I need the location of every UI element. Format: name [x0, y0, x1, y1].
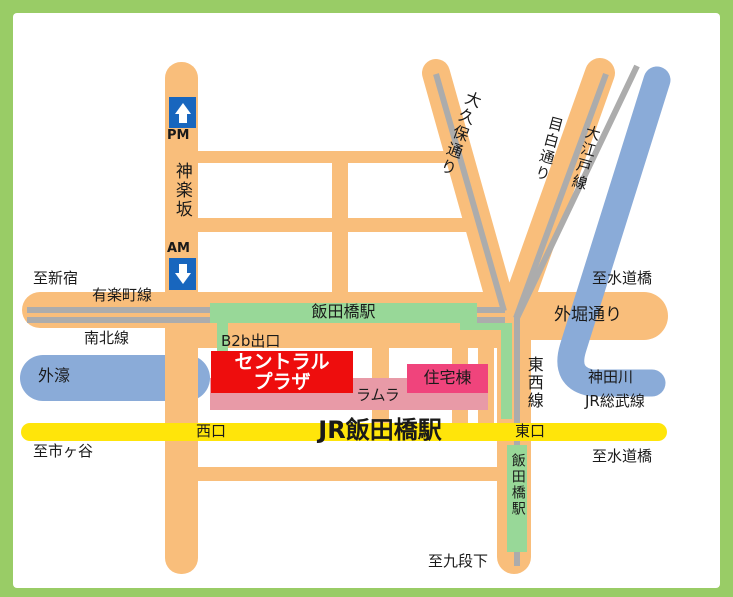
central-plaza-label-line2: プラザ — [253, 372, 310, 392]
to-suidobashi-upper-label: 至水道橋 — [592, 271, 652, 287]
up-arrow-icon — [175, 103, 191, 114]
jutaku-building: 住宅棟 — [407, 364, 488, 393]
down-arrow-icon — [175, 273, 191, 284]
am-down-arrow-sign — [169, 258, 196, 290]
sotobori-moat-label: 外濠 — [38, 368, 70, 385]
east-exit-label: 東口 — [515, 424, 545, 440]
pm-up-arrow-sign — [169, 97, 196, 128]
yurakucho-line-label: 有楽町線 — [92, 288, 152, 304]
west-exit-label: 西口 — [196, 424, 226, 440]
namboku-line-label: 南北線 — [84, 331, 129, 347]
kanda-river — [571, 80, 657, 383]
to-suidobashi-lower-label: 至水道橋 — [592, 449, 652, 465]
jutaku-label: 住宅棟 — [423, 370, 471, 387]
up-arrow-stem — [179, 114, 187, 123]
to-shinjuku-label: 至新宿 — [33, 271, 78, 287]
iidabashi-metro-station-label: 飯田橋駅 — [210, 304, 477, 321]
pm-label: PM — [167, 129, 197, 143]
central-plaza-label-line1: セントラル — [234, 352, 329, 372]
to-ichigaya-label: 至市ヶ谷 — [33, 444, 93, 460]
jr-iidabashi-station-label: JR飯田橋駅 — [300, 416, 460, 444]
b2b-exit-label: B2b出口 — [221, 334, 280, 350]
iidabashi-south-station-label: 飯田橋駅 — [510, 453, 525, 517]
am-label: AM — [167, 242, 197, 256]
station-walkway-vertical — [501, 325, 512, 419]
ramla-label: ラムラ — [356, 388, 400, 404]
tozai-line-label: 東西線 — [525, 356, 542, 410]
access-map: 住宅棟 セントラル プラザ PM AM 神楽坂 至新宿 有楽町線 南北線 外濠 … — [0, 0, 733, 597]
down-arrow-stem — [179, 264, 187, 273]
kagurazaka-label: 神楽坂 — [172, 162, 190, 219]
to-kudanshita-label: 至九段下 — [428, 554, 488, 570]
sotobori-dori-label: 外堀通り — [554, 307, 622, 325]
kanda-river-label: 神田川 — [588, 370, 633, 386]
jr-sobu-line-label: JR総武線 — [585, 394, 645, 410]
central-plaza-building: セントラル プラザ — [211, 351, 353, 393]
